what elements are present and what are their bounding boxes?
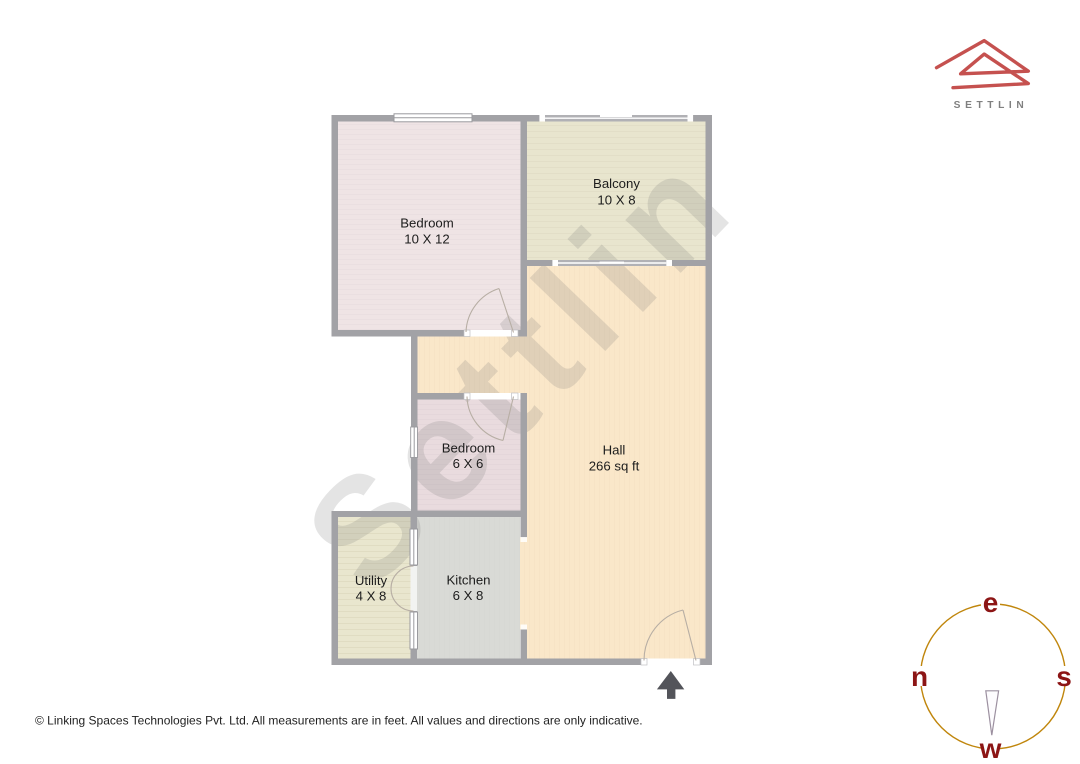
svg-text:4 X 8: 4 X 8 (356, 589, 387, 604)
svg-text:Utility: Utility (355, 573, 388, 588)
svg-text:n: n (911, 661, 928, 692)
svg-text:e: e (983, 587, 999, 618)
svg-text:w: w (979, 733, 1002, 764)
svg-text:Hall: Hall (603, 443, 626, 458)
svg-text:266 sq ft: 266 sq ft (589, 459, 640, 474)
svg-text:Balcony: Balcony (593, 176, 640, 191)
svg-text:6 X 6: 6 X 6 (453, 456, 484, 471)
svg-text:Bedroom: Bedroom (400, 216, 454, 231)
svg-text:SETTLIN: SETTLIN (954, 100, 1029, 111)
svg-text:10 X 8: 10 X 8 (597, 193, 635, 208)
svg-text:© Linking Spaces Technologies: © Linking Spaces Technologies Pvt. Ltd. … (35, 714, 643, 728)
svg-text:10 X 12: 10 X 12 (404, 232, 449, 247)
svg-text:Bedroom: Bedroom (442, 441, 496, 456)
svg-text:s: s (1056, 661, 1072, 692)
svg-text:Kitchen: Kitchen (447, 573, 491, 588)
svg-text:6 X 8: 6 X 8 (453, 588, 484, 603)
